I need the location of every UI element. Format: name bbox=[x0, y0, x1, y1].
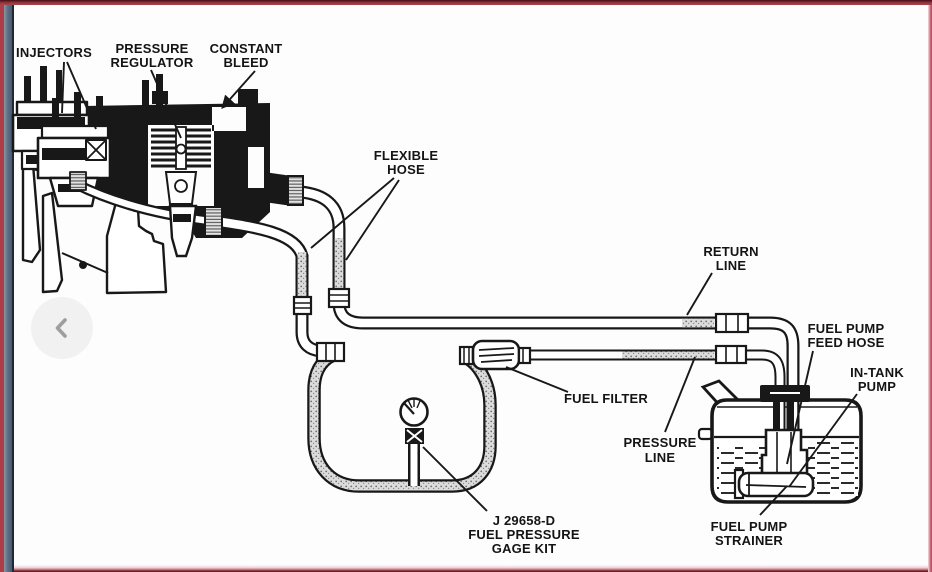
label-pressure-line: LINE bbox=[645, 450, 676, 465]
label-in-tank-pump: IN-TANK bbox=[850, 365, 904, 380]
label-fuel-pump-feed-hose: FUEL PUMP bbox=[808, 321, 885, 336]
hose-fitting bbox=[294, 297, 311, 314]
fuel-system-diagram: INJECTORS PRESSURE REGULATOR CONSTANT BL… bbox=[0, 0, 932, 572]
label-flexible-hose: HOSE bbox=[387, 162, 425, 177]
flexible-hose-leader bbox=[346, 180, 399, 260]
label-constant-bleed: CONSTANT bbox=[210, 41, 283, 56]
hose-fitting bbox=[329, 289, 349, 307]
label-fuel-pump-strainer: STRAINER bbox=[715, 533, 783, 548]
fuel-pressure-gauge bbox=[401, 399, 428, 487]
label-fuel-filter: FUEL FILTER bbox=[564, 391, 648, 406]
line-fitting bbox=[716, 314, 748, 332]
label-gage-kit: GAGE KIT bbox=[492, 541, 556, 556]
loop-fitting bbox=[317, 343, 344, 361]
label-gage-kit: FUEL PRESSURE bbox=[468, 527, 580, 542]
label-constant-bleed: BLEED bbox=[223, 55, 268, 70]
label-pressure-line: PRESSURE bbox=[623, 435, 696, 450]
label-gage-kit: J 29658-D bbox=[493, 513, 556, 528]
label-flexible-hose: FLEXIBLE bbox=[374, 148, 439, 163]
previous-image-button[interactable] bbox=[31, 297, 93, 359]
label-return-line: LINE bbox=[716, 258, 747, 273]
label-return-line: RETURN bbox=[703, 244, 758, 259]
label-fuel-pump-feed-hose: FEED HOSE bbox=[808, 335, 885, 350]
label-pressure-regulator: PRESSURE bbox=[115, 41, 188, 56]
pressure-line-leader bbox=[665, 357, 695, 432]
line-fitting bbox=[716, 346, 746, 363]
chevron-left-icon bbox=[49, 315, 75, 341]
fuel-filter-leader bbox=[506, 367, 568, 392]
fuel-filter bbox=[460, 341, 530, 369]
image-viewer: INJECTORS PRESSURE REGULATOR CONSTANT BL… bbox=[0, 0, 932, 572]
return-line-leader bbox=[687, 273, 712, 315]
label-pressure-regulator: REGULATOR bbox=[111, 55, 194, 70]
flexible-hose-leader bbox=[311, 178, 394, 248]
label-fuel-pump-strainer: FUEL PUMP bbox=[711, 519, 788, 534]
label-injectors: INJECTORS bbox=[16, 45, 92, 60]
label-in-tank-pump: PUMP bbox=[858, 379, 896, 394]
pressure-feed-hose bbox=[205, 207, 321, 351]
fuel-pump-strainer bbox=[735, 470, 813, 498]
